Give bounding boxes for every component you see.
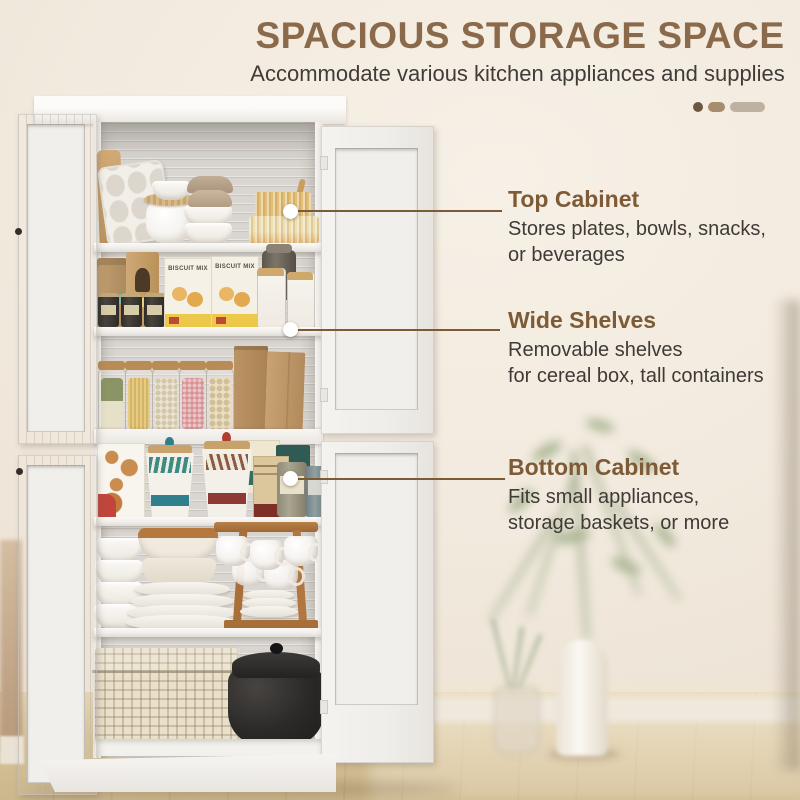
flour-jar-2	[287, 272, 315, 329]
callout-body-line: or beverages	[508, 242, 788, 268]
callout-body-line: Removable shelves	[508, 337, 788, 363]
jar-shell-pasta	[206, 368, 234, 432]
callout-body-line: storage baskets, or more	[508, 510, 788, 536]
callout-top-cabinet: Top Cabinet Stores plates, bowls, snacks…	[508, 186, 788, 268]
indicator-long-bar-icon	[730, 102, 765, 112]
indicator-dot-icon	[693, 102, 703, 112]
paper-bag-2	[265, 351, 306, 430]
dutch-oven-knob	[270, 643, 283, 654]
left-lower-door	[18, 455, 97, 795]
callout-dot-bottom-cabinet	[283, 471, 298, 486]
pantry-cabinet: BISCUIT MIX BISCUIT MIX	[0, 0, 800, 800]
page-title: SPACIOUS STORAGE SPACE	[240, 14, 800, 58]
product-infographic: BISCUIT MIX BISCUIT MIX	[0, 0, 800, 800]
canister-red-lid	[204, 441, 250, 450]
callout-dot-wide-shelves	[283, 322, 298, 337]
mug-rack-top-bar	[214, 522, 318, 532]
leader-line-wide-shelves	[292, 329, 500, 331]
hinge-3	[320, 470, 328, 484]
biscuit-box-label: BISCUIT MIX	[212, 264, 258, 270]
cookie-box	[97, 443, 145, 519]
jar-pink-candy	[179, 368, 207, 432]
callout-body-line: Stores plates, bowls, snacks,	[508, 216, 788, 242]
hinge-1	[320, 156, 328, 170]
cabinet-floor	[94, 739, 323, 756]
cabinet-base	[40, 754, 336, 792]
woven-basket	[95, 648, 237, 745]
hinge-2	[320, 388, 328, 402]
right-lower-door	[321, 441, 434, 763]
shelf-4	[94, 628, 323, 637]
paper-bag-1	[234, 346, 268, 430]
small-plate-3	[240, 606, 298, 617]
glazed-bowl-1	[138, 528, 218, 562]
callout-body-line: Fits small appliances,	[508, 484, 788, 510]
callout-title: Wide Shelves	[508, 307, 788, 333]
canister-teal	[145, 453, 195, 517]
jar-oats	[152, 368, 180, 432]
carousel-indicator	[693, 102, 765, 112]
callout-body-line: for cereal box, tall containers	[508, 363, 788, 389]
mug-1	[216, 536, 250, 566]
spice-tin-2	[121, 293, 142, 327]
mug-3	[284, 536, 318, 566]
biscuit-box-2: BISCUIT MIX	[211, 256, 259, 329]
jar-spaghetti	[125, 368, 153, 432]
leader-line-bottom-cabinet	[292, 478, 505, 480]
spice-tin-3	[144, 293, 165, 327]
leader-line-top-cabinet	[292, 210, 502, 212]
taupe-bowl-2	[188, 190, 232, 207]
callout-title: Top Cabinet	[508, 186, 788, 212]
callout-bottom-cabinet: Bottom Cabinet Fits small appliances, st…	[508, 454, 788, 536]
canister-teal-lid	[148, 445, 192, 454]
canister-red	[201, 449, 253, 517]
ribbed-box-bottom	[249, 216, 319, 244]
spice-tin-1	[98, 293, 119, 327]
small-white-bowl	[152, 181, 190, 200]
left-lower-door-knob	[16, 468, 23, 475]
left-upper-door-knob	[15, 228, 22, 235]
callout-wide-shelves: Wide Shelves Removable shelves for cerea…	[508, 307, 788, 389]
right-upper-door	[321, 126, 434, 434]
jar-herbs	[98, 368, 126, 432]
hinge-4	[320, 700, 328, 714]
biscuit-box-label: BISCUIT MIX	[165, 266, 211, 272]
biscuit-box-1: BISCUIT MIX	[164, 258, 212, 329]
mug-2	[250, 540, 284, 570]
dutch-oven-lid	[232, 652, 320, 678]
flour-jar-1	[257, 268, 286, 329]
callout-title: Bottom Cabinet	[508, 454, 788, 480]
callout-dot-top-cabinet	[283, 204, 298, 219]
dutch-oven-body	[228, 668, 324, 746]
indicator-short-bar-icon	[708, 102, 725, 112]
white-bowl-2	[184, 223, 232, 244]
left-upper-door	[18, 114, 97, 444]
page-subtitle: Accommodate various kitchen appliances a…	[235, 60, 800, 87]
